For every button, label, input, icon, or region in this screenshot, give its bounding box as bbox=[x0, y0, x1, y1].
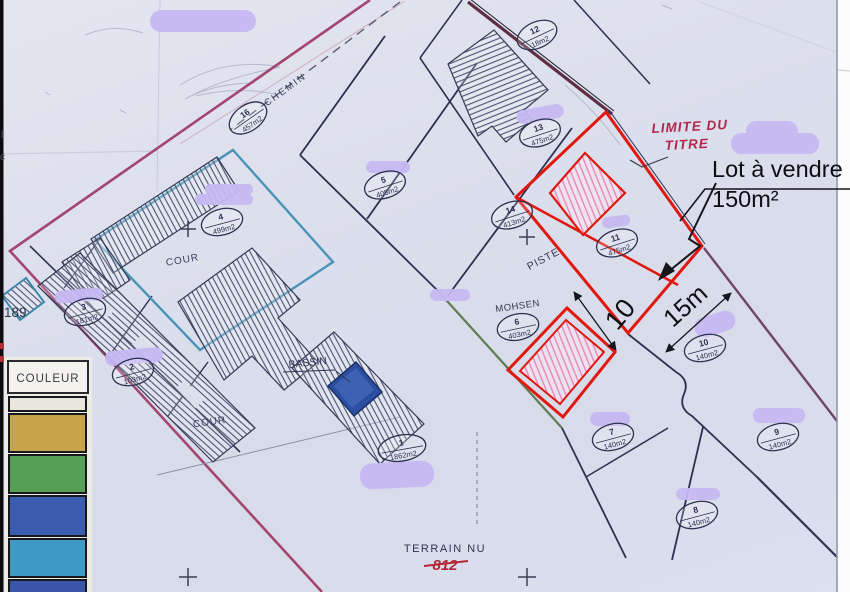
color-legend: COULEUR bbox=[4, 357, 92, 592]
survey-cross bbox=[519, 229, 535, 245]
margin-ref-label: 189 bbox=[4, 305, 27, 320]
redaction-blob bbox=[150, 10, 256, 32]
hooked-division-line bbox=[628, 334, 838, 558]
piste-label: PISTE bbox=[525, 246, 562, 273]
redaction-blob bbox=[676, 488, 720, 500]
parcel-label-6: 6403m2 bbox=[495, 310, 541, 344]
terrain-nu-label: TERRAIN NU bbox=[404, 543, 486, 555]
legend-swatch bbox=[9, 496, 86, 536]
parcel-label-11: 11475m2 bbox=[593, 224, 641, 262]
dim-10-label: 10 bbox=[599, 293, 641, 335]
redaction-blob bbox=[753, 408, 805, 423]
parcel-label-10: 10140m2 bbox=[681, 330, 728, 366]
parcel-label-14: 14413m2 bbox=[488, 196, 536, 234]
redaction-blob bbox=[430, 289, 470, 301]
scanned-cadastral-plan: CHEMIN PISTE MOHSEN COUR COUR BASSIN TER… bbox=[0, 0, 850, 592]
scan-left-edge bbox=[0, 0, 4, 592]
parcel-label-9: 9140m2 bbox=[754, 419, 801, 455]
redaction-blob bbox=[205, 184, 253, 195]
boundary-lines bbox=[10, 0, 850, 592]
scan-right-margin bbox=[837, 0, 850, 592]
division-line bbox=[300, 36, 385, 155]
lot-area-label: 150m² bbox=[712, 186, 779, 212]
mohsen-label: MOHSEN bbox=[495, 298, 541, 315]
limite-du-titre-line2: TITRE bbox=[664, 136, 709, 153]
legend-swatch bbox=[9, 539, 86, 577]
legend-swatch bbox=[9, 455, 86, 493]
plan-svg: CHEMIN PISTE MOHSEN COUR COUR BASSIN TER… bbox=[0, 0, 850, 592]
cour-upper-label: COUR bbox=[165, 252, 200, 269]
svg-text:c: c bbox=[0, 152, 5, 163]
survey-cross bbox=[179, 568, 197, 586]
survey-cross bbox=[518, 568, 536, 586]
redaction-blob bbox=[359, 460, 434, 490]
pencil-scribbles bbox=[45, 5, 672, 145]
parcel-labels-layer: 11862m22103m23181m24499m25405m26403m2714… bbox=[61, 14, 801, 533]
legend-swatch bbox=[9, 414, 86, 452]
redaction-blob bbox=[195, 194, 253, 205]
legend-swatch bbox=[9, 397, 86, 411]
division-line bbox=[420, 0, 462, 58]
sliver-parcel-line bbox=[574, 0, 650, 84]
limite-du-titre-line1: LIMITE DU bbox=[651, 117, 728, 136]
svg-text:l: l bbox=[1, 130, 3, 141]
legend-swatch bbox=[9, 580, 86, 592]
legend-title: COULEUR bbox=[16, 373, 79, 385]
parcel-division-lines bbox=[30, 0, 838, 560]
lot-for-sale-label: Lot à vendre bbox=[712, 156, 843, 182]
redaction-blob bbox=[731, 133, 819, 154]
parcel-label-12: 1218m2 bbox=[512, 14, 561, 55]
redaction-blob bbox=[601, 214, 630, 229]
